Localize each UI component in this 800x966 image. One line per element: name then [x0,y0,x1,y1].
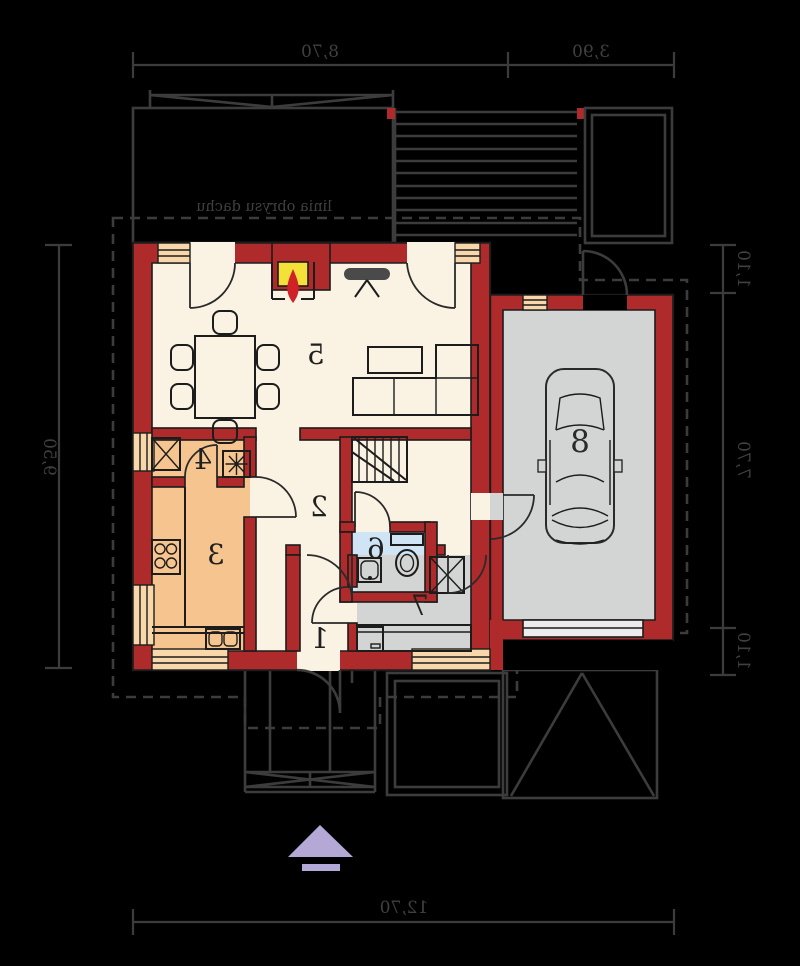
window-bottom-utility [412,649,490,670]
dim-right-middle-label: 7,70 [733,441,753,479]
dimension-left-9-50: 9,50 [39,245,72,668]
window-side-pantry [133,433,154,471]
room-label-pantry: 4 [194,443,212,476]
garage-window [523,295,547,310]
window-top-left [158,243,190,263]
garage-block: 8 [490,251,673,670]
floor-plan-page: 8,70 3,90 9,50 1,10 7,70 1,10 12,70 [0,0,800,966]
room-label-bathroom: 6 [367,532,385,565]
side-landing [585,108,672,243]
dimension-top: 8,70 3,90 [133,42,674,78]
upper-terrace [133,90,393,243]
garage-door [523,620,643,637]
window-side-kitchen [133,585,154,645]
room-label-living: 5 [307,338,325,371]
room-label-entry: 1 [311,622,329,655]
room-label-kitchen: 3 [207,538,225,571]
room-label-utility: 7 [411,589,429,622]
room-label-garage: 8 [570,424,590,460]
north-arrow-icon [288,825,353,871]
driveway [503,670,657,798]
entry-porch [245,670,375,792]
room-label-hall: 2 [310,490,328,523]
floor-plan-canvas: 8,70 3,90 9,50 1,10 7,70 1,10 12,70 [0,0,800,966]
dimension-bottom: 12,70 [133,898,674,935]
car-icon: 8 [538,369,622,544]
dim-top-right-label: 3,90 [572,42,610,62]
mirrored-plan: 8,70 3,90 9,50 1,10 7,70 1,10 12,70 [39,42,753,935]
window-top-small [455,243,480,263]
dim-right-top-label: 1,10 [733,250,753,288]
exterior-stairs [387,108,585,243]
dim-left-label: 9,50 [39,438,59,476]
dim-top-left-label: 8,70 [301,42,339,62]
main-house: 5 4 3 2 6 7 1 [133,242,503,713]
roof-outline-label: linia obrysu dachu [196,199,332,215]
side-entrance-door [583,251,627,295]
dim-bottom-label: 12,70 [380,898,429,918]
dimension-right-segments: 1,10 7,70 1,10 [710,245,753,675]
paved-terrace [387,673,507,795]
entry-door [297,670,340,713]
dim-right-bottom-label: 1,10 [733,632,753,670]
window-bottom-kitchen [152,649,228,670]
